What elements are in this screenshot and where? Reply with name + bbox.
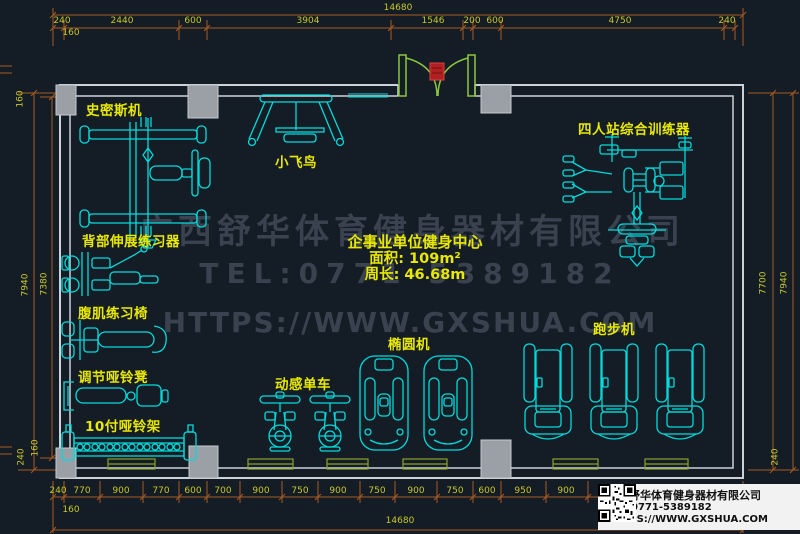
dim-bottom-segment: 900 bbox=[252, 487, 269, 496]
dim-left-bottom-offset: 160 bbox=[32, 439, 41, 456]
dim-bottom-segment: 750 bbox=[368, 487, 385, 496]
dim-bottom-segment: 770 bbox=[152, 487, 169, 496]
label-spin-bike: 动感单车 bbox=[275, 373, 331, 393]
fly-bird-drawing bbox=[249, 95, 344, 146]
label-fly-bird: 小飞鸟 bbox=[275, 151, 317, 171]
dim-top-segment: 600 bbox=[184, 17, 201, 26]
dim-top-segment: 4750 bbox=[609, 17, 632, 26]
dim-bottom-segment: 900 bbox=[112, 487, 129, 496]
dim-top-segment: 200 bbox=[463, 17, 480, 26]
dim-bottom-total: 14680 bbox=[386, 517, 415, 526]
dim-left-inner: 7380 bbox=[41, 273, 50, 296]
dim-top-segment: 600 bbox=[486, 17, 503, 26]
dim-top-segment: 240 bbox=[53, 17, 70, 26]
qr-code bbox=[598, 484, 636, 522]
door-marker bbox=[430, 63, 444, 80]
dumbbell-bench-drawing bbox=[64, 382, 168, 410]
dim-bottom-segment: 770 bbox=[73, 487, 90, 496]
room-area: 面积: 109m² bbox=[347, 251, 482, 267]
four-station-trainer-drawing bbox=[563, 134, 693, 266]
dim-left-bottom-wall: 240 bbox=[18, 448, 27, 465]
label-four-station-trainer: 四人站综合训练器 bbox=[578, 118, 690, 138]
entrance-door bbox=[399, 55, 475, 96]
ellipticals-drawing bbox=[360, 356, 472, 450]
dim-right-outer: 7940 bbox=[781, 272, 790, 295]
label-dumbbell-rack: 10付哑铃架 bbox=[85, 415, 161, 435]
label-smith-machine: 史密斯机 bbox=[86, 99, 142, 119]
dim-right-bottom: 240 bbox=[772, 448, 781, 465]
dim-bottom-segment: 900 bbox=[407, 487, 424, 496]
dim-left-top: 160 bbox=[17, 90, 26, 107]
label-elliptical: 椭圆机 bbox=[388, 333, 430, 353]
dim-bottom-segment: 240 bbox=[49, 487, 66, 496]
dim-top-offset: 160 bbox=[62, 29, 79, 38]
room-perimeter: 周长: 46.68m bbox=[347, 267, 482, 283]
dim-bottom-segment: 900 bbox=[329, 487, 346, 496]
smith-machine-drawing bbox=[80, 117, 210, 248]
dim-bottom-segment: 750 bbox=[446, 487, 463, 496]
dim-bottom-segment: 750 bbox=[291, 487, 308, 496]
back-extension-drawing bbox=[62, 246, 158, 296]
ab-chair-drawing bbox=[62, 320, 166, 360]
dim-top-segment: 1546 bbox=[422, 17, 445, 26]
dim-bottom-segment: 600 bbox=[184, 487, 201, 496]
label-back-extension: 背部伸展练习器 bbox=[82, 230, 180, 250]
dim-bottom-segment: 600 bbox=[478, 487, 495, 496]
dim-bottom-segment: 700 bbox=[214, 487, 231, 496]
treadmills-drawing bbox=[524, 344, 704, 439]
label-dumbbell-bench: 调节哑铃凳 bbox=[78, 366, 148, 386]
room-info: 企事业单位健身中心 面积: 109m² 周长: 46.68m bbox=[347, 233, 482, 283]
spin-bikes-drawing bbox=[260, 392, 350, 451]
dim-right-inner: 7700 bbox=[760, 272, 769, 295]
dim-bottom-segment: 900 bbox=[557, 487, 574, 496]
title-block: 广西舒华体育健身器材有限公司 TEL:0771-5389182 HTTPS://… bbox=[598, 484, 800, 530]
room-title: 企事业单位健身中心 bbox=[347, 233, 482, 251]
dim-bottom-offset: 160 bbox=[62, 506, 79, 515]
label-treadmill: 跑步机 bbox=[593, 318, 635, 338]
label-ab-chair: 腹肌练习椅 bbox=[78, 302, 148, 322]
dim-top-segment: 3904 bbox=[297, 17, 320, 26]
dim-top-total: 14680 bbox=[384, 4, 413, 13]
dim-top-segment: 2440 bbox=[111, 17, 134, 26]
dim-top-segment: 240 bbox=[718, 17, 735, 26]
dim-left-outer: 7940 bbox=[22, 274, 31, 297]
dim-bottom-segment: 950 bbox=[514, 487, 531, 496]
cad-floor-plan: 广西舒华体育健身器材有限公司 TEL:0771-5389182 HTTPS://… bbox=[0, 0, 800, 534]
